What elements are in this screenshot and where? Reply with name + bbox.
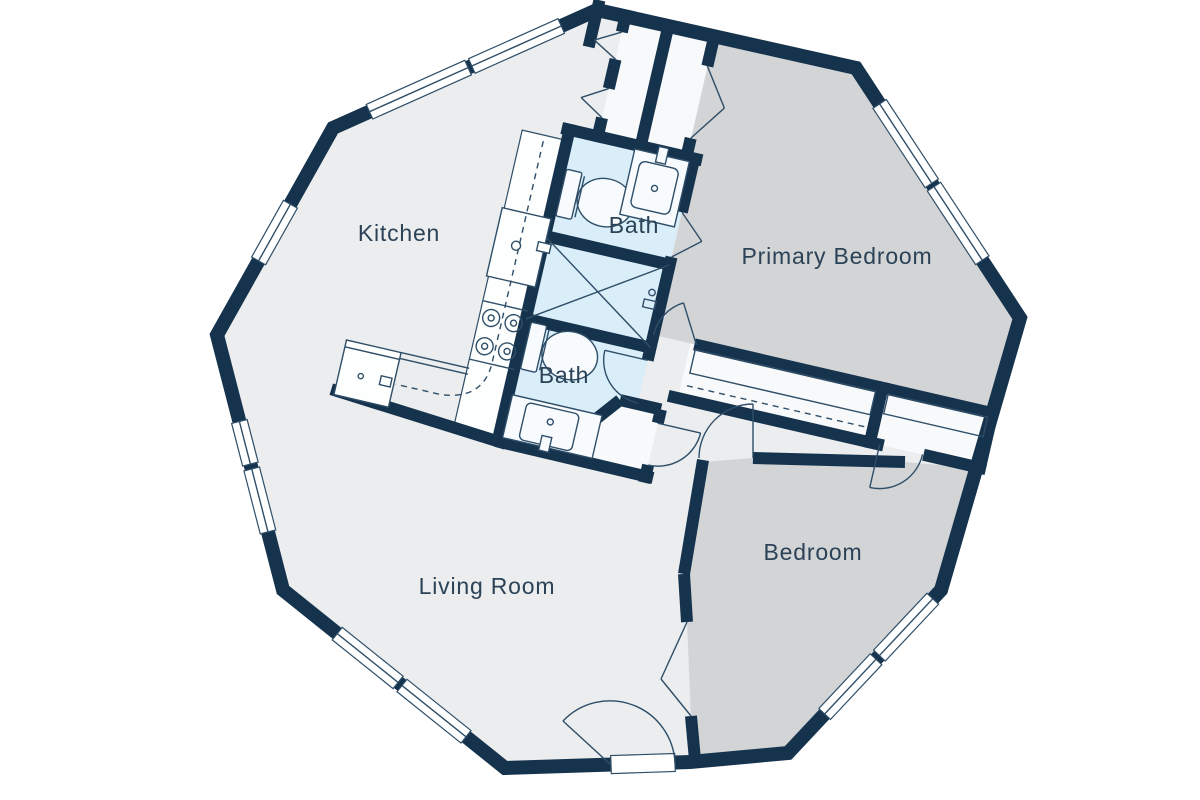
bath-lower-label: Bath <box>539 362 590 388</box>
bedroom-top-wall <box>753 458 905 462</box>
bath-upper-label: Bath <box>609 212 660 238</box>
appliance-icon <box>334 340 401 407</box>
living-room-label: Living Room <box>419 573 556 599</box>
bedroom-label: Bedroom <box>764 539 863 565</box>
floor-plan-page: Kitchen Bath Bath Primary Bedroom Bedroo… <box>0 0 1200 800</box>
primary-bedroom-label: Primary Bedroom <box>742 243 933 269</box>
kitchen-label: Kitchen <box>358 220 440 246</box>
floor-plan-canvas: Kitchen Bath Bath Primary Bedroom Bedroo… <box>0 0 1200 800</box>
